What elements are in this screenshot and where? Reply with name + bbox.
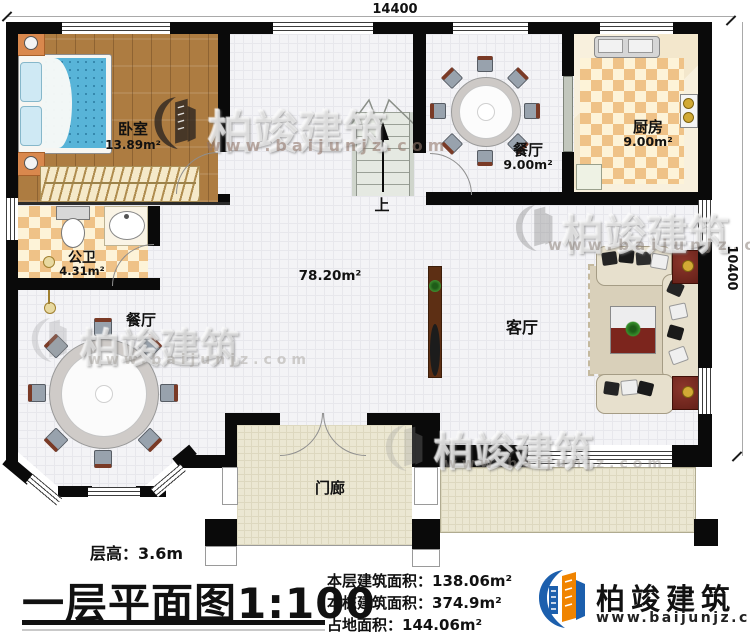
kitchen-label: 厨房 xyxy=(608,120,688,135)
nightstand-lamp-icon xyxy=(24,36,38,50)
nightstand-lamp-icon xyxy=(24,156,38,170)
tv-icon xyxy=(430,324,440,376)
kitchen-area-label: 9.00m² xyxy=(608,136,688,149)
bed-pillow-bottom xyxy=(20,106,42,146)
porch-column-left-base xyxy=(205,546,237,566)
dimension-right-label: 10400 xyxy=(725,238,738,298)
bathroom-area-label: 4.31m² xyxy=(42,266,122,278)
watermark-url: www.baijunjz.com xyxy=(548,236,750,254)
bedroom-label: 卧室 xyxy=(93,122,173,137)
kitchen-appliance xyxy=(576,164,602,190)
porch-pier-left xyxy=(222,467,238,505)
wall-left xyxy=(6,34,18,455)
dining-upper-area-label: 9.00m² xyxy=(488,159,568,172)
dining-table-upper-hub xyxy=(477,103,495,121)
sofa-cushion xyxy=(620,379,638,396)
kitchen-sink-basin xyxy=(628,39,653,53)
window-bedroom-top xyxy=(62,22,170,34)
wall-bathroom-right xyxy=(148,206,160,246)
kitchen-sink-basin xyxy=(598,39,623,53)
bay-window-bottom xyxy=(88,487,140,497)
porch-column-left xyxy=(205,519,237,546)
stove-burner-icon xyxy=(683,98,694,109)
watermark-url: www.baijunjz.com xyxy=(88,352,311,368)
dimension-top-label: 14400 xyxy=(360,3,430,16)
dining-chair xyxy=(430,103,446,119)
window-hall-top xyxy=(453,22,528,34)
terrace-column-right xyxy=(694,519,718,546)
window-dining-top xyxy=(273,22,373,34)
floor-lamp-stem xyxy=(48,290,50,304)
watermark-url: www.baijunjz.com xyxy=(206,136,449,155)
wall-living-bottom-right xyxy=(672,445,712,467)
porch-column-right xyxy=(412,519,440,549)
watermark-logo-icon xyxy=(28,312,72,368)
dimension-tick xyxy=(732,451,743,462)
dining-chair xyxy=(28,384,46,402)
hall-area-label: 78.20m² xyxy=(290,270,370,284)
plant-icon xyxy=(429,280,441,292)
dining-table-lower-hub xyxy=(95,385,113,403)
window-kitchen-top xyxy=(600,22,673,34)
stat-footprint-area: 占地面积：144.06m² xyxy=(327,614,482,635)
sink-faucet-icon xyxy=(124,214,129,219)
bay-wall-corner-2 xyxy=(58,486,92,497)
stat-floor-area: 本层建筑面积：138.06m² xyxy=(327,570,512,591)
watermark-url: www.baijunjz.com xyxy=(444,456,667,472)
bedroom-area-label: 13.89m² xyxy=(93,139,173,151)
porch-column-right-base xyxy=(412,549,440,567)
stairs-up-label: 上 xyxy=(362,198,402,213)
plant-icon xyxy=(625,321,641,337)
title-underline-thick xyxy=(22,620,325,625)
dining-chair xyxy=(94,450,112,468)
floor-plan: 柏竣建筑 www.baijunjz.com 柏竣建筑 www.baijunjz.… xyxy=(0,0,750,644)
watermark-logo-icon xyxy=(382,418,428,478)
table-lamp-icon xyxy=(682,386,694,398)
bathroom-label: 公卫 xyxy=(42,251,122,265)
wardrobe-rail xyxy=(44,182,196,184)
dining-lower-label: 餐厅 xyxy=(101,313,181,328)
brand-url: www.baijunjz.com xyxy=(596,610,750,626)
dining-chair xyxy=(477,56,493,72)
title-underline-thin xyxy=(22,629,325,631)
dining-upper-label: 餐厅 xyxy=(488,143,568,158)
porch-label: 门廊 xyxy=(290,481,370,496)
window-bathroom-left xyxy=(6,198,18,240)
toilet-bowl-icon xyxy=(61,218,85,248)
wall-kitchen-left-lower xyxy=(562,152,574,192)
dimension-line-top xyxy=(8,16,734,17)
kitchen-sliding-door xyxy=(563,76,573,152)
bed-pillow-top xyxy=(20,62,42,102)
wall-bedroom-bathroom-divider xyxy=(18,202,230,205)
brand-logo-icon xyxy=(534,566,592,632)
floor-height-label: 层高：3.6m xyxy=(90,540,183,564)
window-living-right-lower xyxy=(698,368,712,414)
stat-building-area: 本栋建筑面积：374.9m² xyxy=(327,592,502,613)
living-room-label: 客厅 xyxy=(482,320,562,336)
dining-chair xyxy=(160,384,178,402)
sofa-cushion xyxy=(603,381,620,396)
wall-kitchen-left-upper xyxy=(562,34,574,76)
dining-chair xyxy=(524,103,540,119)
